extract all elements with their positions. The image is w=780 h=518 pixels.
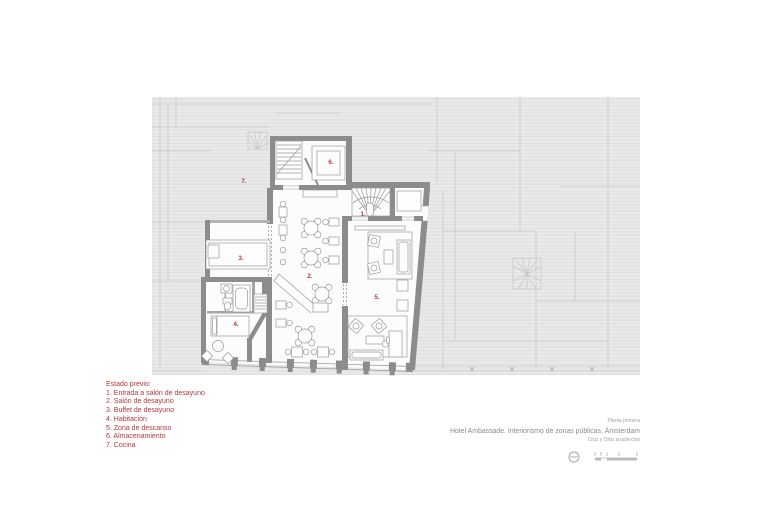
round-table-group: [312, 284, 332, 304]
room-label-6: 6.: [328, 159, 334, 166]
small-table: [276, 301, 292, 309]
legend: Estado previo: 1. Entrada a salón de des…: [106, 381, 205, 451]
project-title: Hotel Ambassade. Interiorismo de zonas p…: [410, 428, 640, 435]
scale-label: 5: [600, 452, 603, 457]
armchair: [367, 261, 380, 274]
scale-label: 1: [606, 452, 609, 457]
drawing-sheet: 1. 2. 3. 4. 5. 6. 7. Estado previo: 1. E…: [0, 0, 780, 518]
stair-entrance-fan: [352, 188, 390, 216]
room-label-7: 7.: [241, 178, 247, 185]
legend-item: 1. Entrada a salón de desayuno: [106, 390, 205, 399]
round-table-group: [301, 248, 321, 268]
scale-segment: [607, 458, 619, 461]
bed: [211, 316, 249, 336]
scale-label: 0: [594, 452, 597, 457]
small-table: [323, 256, 339, 264]
small-table: [323, 218, 339, 226]
scale-segment: [619, 458, 637, 461]
toilet: [223, 298, 232, 310]
coffee-table: [384, 250, 393, 264]
legend-title: Estado previo:: [106, 381, 205, 390]
room-label-2: 2.: [307, 273, 313, 280]
stool: [397, 300, 408, 311]
scale-segment: [595, 458, 601, 461]
small-table: [279, 201, 287, 223]
bathtub: [233, 285, 250, 312]
room-label-4: 4.: [233, 321, 239, 328]
round-table-group: [295, 326, 315, 346]
scale-bar: 0 5 1 2 5: [564, 448, 642, 465]
legend-item: 5. Zona de descanso: [106, 425, 205, 434]
sofa: [350, 350, 383, 360]
scale-label: 2: [618, 452, 621, 457]
legend-item: 6. Almacenamiento: [106, 433, 205, 442]
coffee-table: [366, 336, 384, 344]
sideboard: [303, 190, 337, 197]
stool: [397, 280, 408, 291]
sheet-name: Planta primera: [410, 418, 640, 424]
room-label-1: 1.: [360, 211, 366, 218]
legend-item: 7. Cocina: [106, 442, 205, 451]
radiator: [355, 226, 405, 230]
room-label-3: 3.: [238, 255, 244, 262]
title-block: Planta primera Hotel Ambassade. Interior…: [410, 418, 640, 443]
scale-label: 5: [636, 452, 639, 457]
small-table: [279, 225, 287, 241]
legend-item: 2. Salón de desayuno: [106, 398, 205, 407]
legend-item: 4. Habitación: [106, 416, 205, 425]
orientation-circle-icon: [569, 452, 579, 462]
legend-item: 3. Buffet de desayuno: [106, 407, 205, 416]
sofa: [397, 240, 410, 274]
armchair: [367, 234, 380, 247]
side-table: [213, 341, 224, 352]
architects-name: Cruz y Ortiz arquitectos: [410, 437, 640, 443]
small-table: [323, 237, 339, 245]
stair-room6: [276, 141, 302, 179]
round-table-group: [301, 218, 321, 238]
room-label-5: 5.: [374, 294, 380, 301]
small-table: [276, 319, 292, 327]
stair-service: [254, 294, 267, 313]
sink: [221, 284, 232, 293]
